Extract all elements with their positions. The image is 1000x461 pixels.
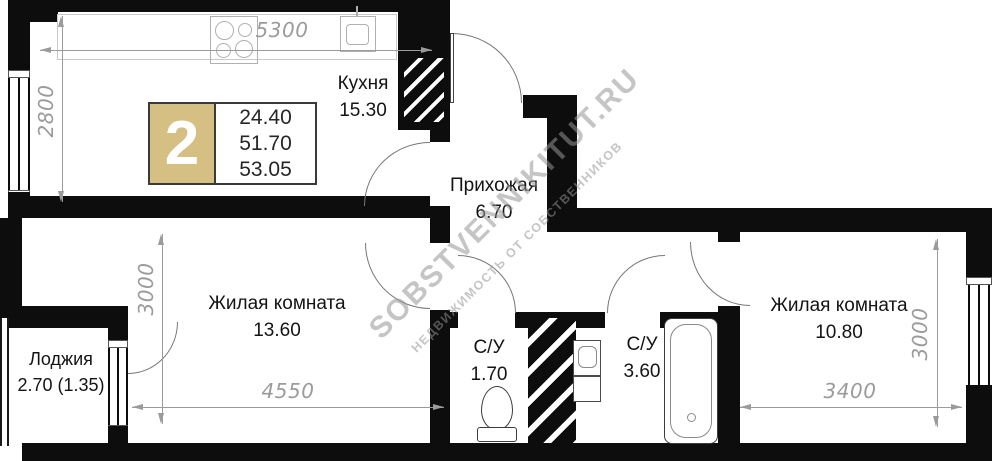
dim-arrow xyxy=(40,47,51,53)
wall-top xyxy=(8,0,450,12)
wall-right-a xyxy=(966,208,992,285)
dim-label-3000-left: 3000 xyxy=(134,249,158,329)
dim-arrow xyxy=(933,416,939,427)
window-jamb xyxy=(966,277,992,285)
kitchen-sink-tap xyxy=(356,6,358,16)
toilet-tank xyxy=(477,427,517,442)
dim-arrow xyxy=(158,234,164,245)
dim-arrow xyxy=(433,404,444,410)
wall-bottom xyxy=(22,443,992,461)
room-name: Кухня xyxy=(263,70,463,97)
room-area: 13.60 xyxy=(167,317,387,344)
wall-bathrooms-top-a xyxy=(450,312,458,328)
room-area: 3.60 xyxy=(592,358,692,385)
room-label-wc1: С/У 1.70 xyxy=(439,334,539,388)
dim-label-5300: 5300 xyxy=(222,18,342,42)
room-label-kitchen: Кухня 15.30 xyxy=(263,70,463,124)
wc1-door-arc xyxy=(458,255,516,313)
dim-label-3400: 3400 xyxy=(790,379,910,403)
dim-arrow xyxy=(132,404,143,410)
dim-arrow xyxy=(740,404,751,410)
room-label-hallway: Прихожая 6.70 xyxy=(394,172,594,226)
room-name: С/У xyxy=(439,334,539,361)
dim-line-3000-left xyxy=(162,234,163,424)
wc2-door-arc xyxy=(607,255,665,313)
dim-arrow xyxy=(421,47,432,53)
area-total: 53.05 xyxy=(239,157,292,183)
room-name: Прихожая xyxy=(394,172,594,199)
room-name: Лоджия xyxy=(0,346,122,372)
room-label-living1: Жилая комната 13.60 xyxy=(167,290,387,344)
room-area: 6.70 xyxy=(394,199,594,226)
dim-arrow xyxy=(158,413,164,424)
room-label-wc2: С/У 3.60 xyxy=(592,331,692,385)
wall-kitchen-hall-stub xyxy=(430,130,450,142)
wall-wc2-room2-upper xyxy=(718,232,740,242)
dim-line-4550 xyxy=(132,407,444,408)
dim-line-2800 xyxy=(62,16,63,202)
wall-loggia-living-lower xyxy=(108,426,128,443)
wall-loggia-top xyxy=(0,306,112,328)
wall-entrance-stub-right xyxy=(523,95,577,118)
dim-arrow xyxy=(58,16,64,27)
kitchen-sink-icon xyxy=(340,16,376,52)
rooms-count-badge: 2 xyxy=(150,104,216,183)
floor-plan: 2 24.40 51.70 53.05 Кухня 15.30 Прихожая… xyxy=(0,0,1000,461)
kitchen-window xyxy=(8,78,30,192)
wall-left-upper-a xyxy=(8,0,30,78)
dim-label-4550: 4550 xyxy=(228,379,348,403)
room-area: 1.70 xyxy=(439,361,539,388)
wall-top-right-long xyxy=(547,208,992,232)
room-label-loggia: Лоджия 2.70 (1.35) xyxy=(0,346,122,398)
room-name: С/У xyxy=(592,331,692,358)
window-jamb xyxy=(8,70,30,78)
dim-label-2800: 2800 xyxy=(34,71,58,151)
room-area: 15.30 xyxy=(263,97,463,124)
living2-window xyxy=(968,285,990,385)
room-area: 2.70 (1.35) xyxy=(0,372,122,398)
area-usable: 51.70 xyxy=(239,131,292,157)
dim-label-3000-right: 3000 xyxy=(908,294,932,374)
dim-line-3000-right xyxy=(937,239,938,427)
dim-line-3400 xyxy=(740,407,962,408)
dim-arrow xyxy=(58,191,64,202)
room-name: Жилая комната xyxy=(167,290,387,317)
dim-line-5300 xyxy=(40,50,432,51)
toilet-icon xyxy=(481,386,513,430)
dim-arrow xyxy=(933,239,939,250)
dim-arrow xyxy=(951,404,962,410)
